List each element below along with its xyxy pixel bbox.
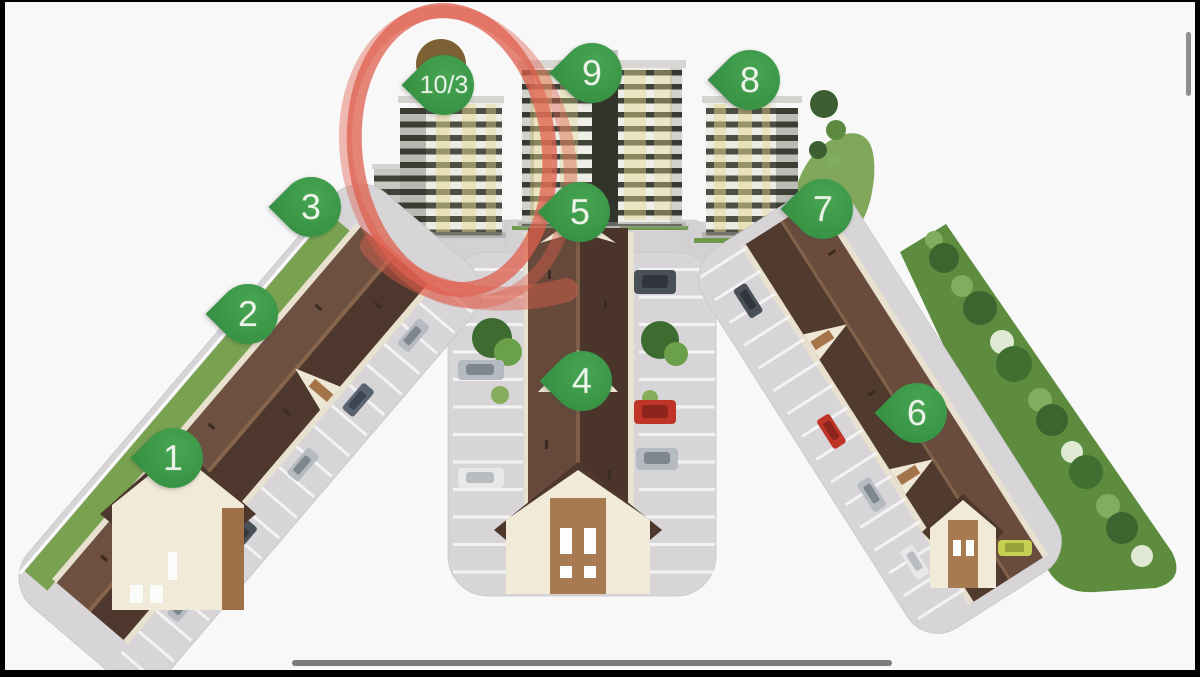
- map-pin-6[interactable]: 6: [875, 371, 960, 456]
- map-pin-label: 1: [143, 428, 203, 488]
- map-pin-8[interactable]: 8: [708, 38, 793, 123]
- map-pin-1[interactable]: 1: [131, 416, 216, 501]
- map-pin-label: 5: [550, 182, 610, 242]
- map-pin-10-3[interactable]: 10/3: [402, 43, 487, 128]
- map-pin-label: 10/3: [414, 55, 474, 115]
- map-pin-label: 8: [720, 50, 780, 110]
- frame-edge-right: [1195, 0, 1200, 677]
- map-pin-3[interactable]: 3: [269, 165, 354, 250]
- map-pin-label: 7: [793, 179, 853, 239]
- map-pin-label: 9: [562, 43, 622, 103]
- map-pin-label: 2: [218, 284, 278, 344]
- map-pin-label: 3: [281, 177, 341, 237]
- frame-edge-top: [0, 0, 1200, 2]
- progress-bar[interactable]: [292, 660, 892, 666]
- map-pin-2[interactable]: 2: [206, 272, 291, 357]
- frame-edge-bottom: [0, 670, 1200, 677]
- map-pin-7[interactable]: 7: [781, 167, 866, 252]
- map-pin-9[interactable]: 9: [550, 31, 635, 116]
- map-pin-label: 4: [552, 351, 612, 411]
- screenshot-stage: 12345678910/3: [0, 0, 1200, 677]
- map-pin-label: 6: [887, 383, 947, 443]
- vertical-scroll-indicator[interactable]: [1186, 32, 1191, 96]
- frame-edge-left: [0, 0, 5, 677]
- map-pin-4[interactable]: 4: [540, 339, 625, 424]
- map-pin-5[interactable]: 5: [538, 170, 623, 255]
